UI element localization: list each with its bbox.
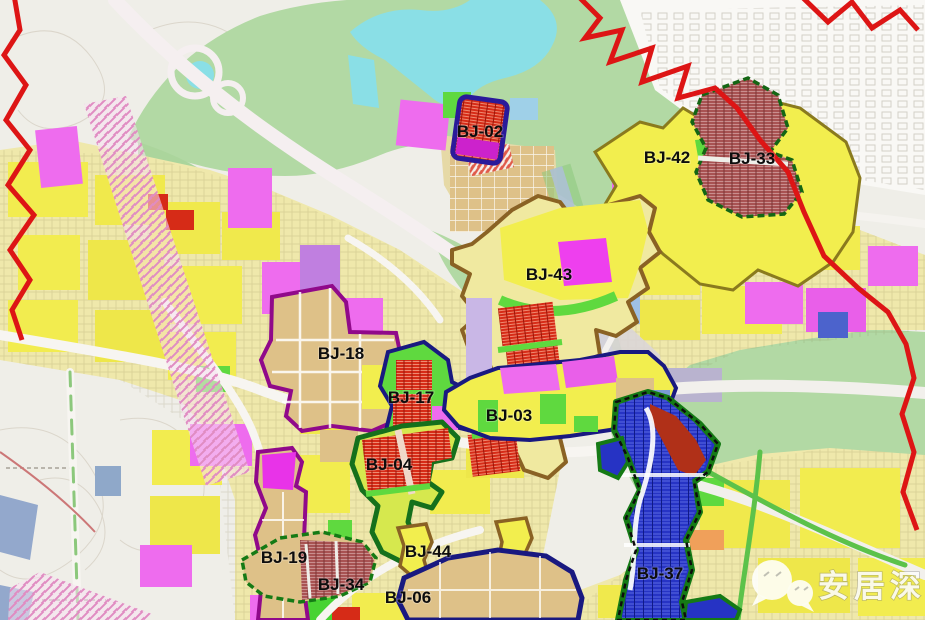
zone-label-BJ-03: BJ-03 [486, 406, 532, 425]
zone-label-BJ-37: BJ-37 [637, 564, 683, 583]
planning-map: BJ-02BJ-42BJ-33BJ-43BJ-18BJ-17BJ-03BJ-04… [0, 0, 925, 620]
watermark-text: 安居深圳 [818, 569, 925, 605]
planning-map-svg: BJ-02BJ-42BJ-33BJ-43BJ-18BJ-17BJ-03BJ-04… [0, 0, 925, 620]
zone-label-BJ-42: BJ-42 [644, 148, 690, 167]
zone-label-BJ-34: BJ-34 [318, 575, 365, 594]
zone-label-BJ-06: BJ-06 [385, 588, 431, 607]
zone-label-BJ-04: BJ-04 [366, 455, 413, 474]
zone-label-BJ-02: BJ-02 [457, 122, 503, 141]
zone-label-BJ-18: BJ-18 [318, 344, 364, 363]
zone-label-BJ-44: BJ-44 [405, 542, 452, 561]
zone-label-BJ-43: BJ-43 [526, 265, 572, 284]
zone-label-BJ-33: BJ-33 [729, 149, 775, 168]
zone-label-BJ-17: BJ-17 [388, 388, 434, 407]
zone-label-BJ-19: BJ-19 [261, 548, 307, 567]
